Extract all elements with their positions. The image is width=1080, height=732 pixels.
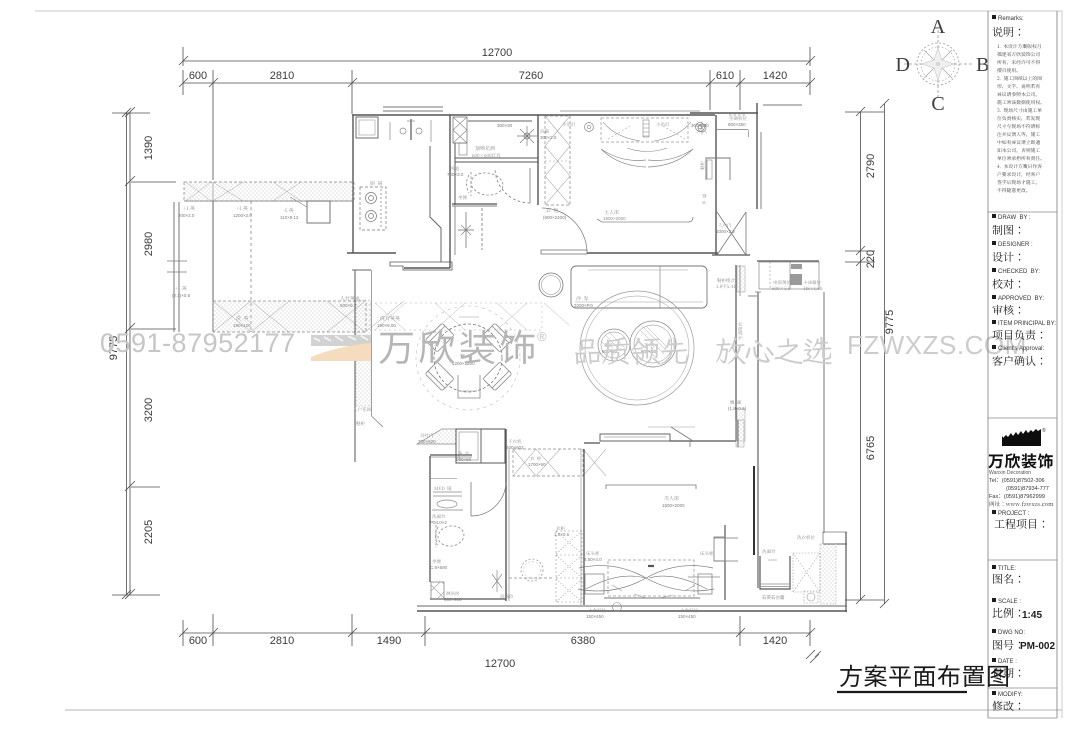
- svg-text:1420: 1420: [763, 635, 787, 647]
- svg-text:220: 220: [865, 250, 877, 268]
- svg-text:ITEM PRINCIPAL BY:: ITEM PRINCIPAL BY:: [998, 321, 1056, 327]
- svg-text:DESIGNER :: DESIGNER :: [998, 242, 1033, 248]
- svg-text:700×600: 700×600: [418, 439, 436, 444]
- svg-text:D: D: [896, 54, 910, 76]
- svg-text:200×2.0: 200×2.0: [178, 213, 195, 218]
- svg-text:190×9.00: 190×9.00: [377, 323, 396, 328]
- svg-text:DRAW BY :: DRAW BY :: [998, 215, 1031, 221]
- svg-text:PROJECT :: PROJECT :: [998, 511, 1030, 517]
- svg-text:610: 610: [716, 70, 734, 82]
- svg-text:P04.0×2: P04.0×2: [430, 520, 447, 525]
- svg-text:(0591)87934-777: (0591)87934-777: [1006, 486, 1049, 492]
- svg-text:1390: 1390: [143, 136, 155, 160]
- svg-text:2980: 2980: [143, 232, 155, 256]
- svg-text:4.50×4.0: 4.50×4.0: [584, 557, 602, 562]
- svg-text:SCALE :: SCALE :: [998, 599, 1021, 605]
- svg-text:6765: 6765: [865, 436, 877, 460]
- svg-text:1490: 1490: [377, 635, 401, 647]
- svg-text:C.8×690: C.8×690: [430, 565, 448, 570]
- svg-text:TITLE:: TITLE:: [998, 566, 1016, 572]
- svg-text:800×350: 800×350: [728, 122, 746, 127]
- svg-text:Tel：(0591)87502-306: Tel：(0591)87502-306: [989, 478, 1045, 484]
- svg-text:300×2.0: 300×2.0: [540, 135, 557, 140]
- svg-text:6380: 6380: [571, 635, 595, 647]
- svg-text:1500×2000: 1500×2000: [662, 503, 685, 508]
- svg-text:110×9.12: 110×9.12: [280, 215, 299, 220]
- svg-text:®: ®: [1042, 427, 1046, 434]
- svg-text:Client's Approval:: Client's Approval:: [998, 346, 1045, 352]
- svg-text:B: B: [976, 54, 989, 76]
- svg-text:2810: 2810: [270, 635, 294, 647]
- svg-text:300×600: 300×600: [691, 123, 709, 128]
- svg-text:600×602: 600×602: [506, 445, 524, 450]
- svg-text:1800×2000: 1800×2000: [603, 216, 626, 221]
- svg-text:(1.8×0.6): (1.8×0.6): [728, 406, 747, 411]
- svg-text:MODIFY:: MODIFY:: [998, 692, 1023, 698]
- svg-text:700×3.0: 700×3.0: [447, 172, 464, 177]
- svg-text:FZWXZS.COM: FZWXZS.COM: [847, 330, 1027, 360]
- svg-text:DATE :: DATE :: [998, 659, 1017, 665]
- svg-text:Remarks:: Remarks:: [998, 16, 1024, 22]
- svg-text:1200×2.0: 1200×2.0: [233, 213, 252, 218]
- svg-text:1.0×0.6: 1.0×0.6: [554, 532, 570, 537]
- svg-text:600: 600: [189, 635, 207, 647]
- svg-text:2810: 2810: [270, 70, 294, 82]
- svg-text:300×30: 300×30: [497, 123, 513, 128]
- svg-text:1000×2.2: 1000×2.2: [716, 229, 735, 234]
- svg-text:0591-87952177: 0591-87952177: [100, 328, 296, 358]
- svg-text:150×450: 150×450: [678, 614, 696, 619]
- svg-text:1420: 1420: [763, 70, 787, 82]
- svg-text:12700: 12700: [485, 658, 516, 670]
- svg-text:900×900: 900×900: [444, 597, 462, 602]
- svg-text:CHECKED BY:: CHECKED BY:: [998, 269, 1040, 275]
- svg-text:®: ®: [537, 329, 547, 344]
- svg-text:12700: 12700: [482, 47, 513, 59]
- svg-text:DWG NO:: DWG NO:: [998, 630, 1025, 636]
- svg-text:2205: 2205: [143, 520, 155, 544]
- svg-text:(600×2400): (600×2400): [543, 215, 567, 220]
- svg-text:APPROVED BY:: APPROVED BY:: [998, 296, 1044, 302]
- svg-text:1:45: 1:45: [1022, 610, 1042, 621]
- svg-text:Fax：(0591)87962999: Fax：(0591)87962999: [989, 494, 1045, 500]
- svg-text:Wanxin Decoration: Wanxin Decoration: [989, 470, 1031, 476]
- svg-text:3200×P.0: 3200×P.0: [574, 303, 593, 308]
- svg-text:C: C: [931, 93, 944, 115]
- svg-text:600×6.2: 600×6.2: [340, 303, 357, 308]
- svg-text:7260: 7260: [519, 70, 543, 82]
- svg-text:150×450: 150×450: [586, 614, 604, 619]
- svg-text:2790: 2790: [865, 154, 877, 178]
- svg-text:PM-002: PM-002: [1020, 641, 1055, 652]
- svg-text:A: A: [931, 16, 946, 38]
- svg-text:600: 600: [189, 70, 207, 82]
- svg-text:3200: 3200: [143, 398, 155, 422]
- svg-text:600×60: 600×60: [456, 457, 472, 462]
- svg-text:1700×60: 1700×60: [528, 462, 546, 467]
- svg-text:(2.1)×0.6: (2.1)×0.6: [172, 293, 191, 298]
